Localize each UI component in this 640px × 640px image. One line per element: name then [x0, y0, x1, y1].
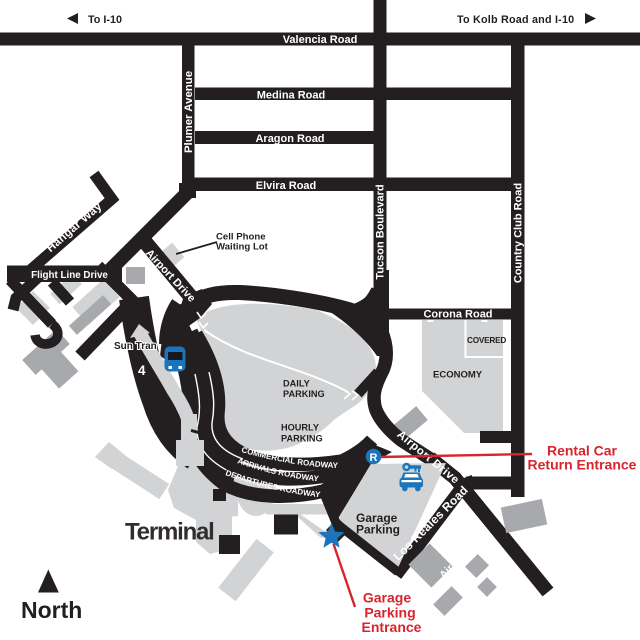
svg-text:Plumer Avenue: Plumer Avenue: [183, 71, 195, 153]
svg-text:ECONOMY: ECONOMY: [433, 370, 483, 381]
svg-text:Terminal: Terminal: [125, 519, 214, 546]
svg-text:Corona Road: Corona Road: [423, 309, 492, 321]
svg-text:Elvira Road: Elvira Road: [256, 180, 317, 192]
svg-text:PARKING: PARKING: [281, 434, 323, 444]
svg-text:PARKING: PARKING: [283, 389, 325, 399]
svg-text:Garage: Garage: [363, 590, 411, 606]
svg-text:Valencia Road: Valencia Road: [283, 34, 358, 46]
svg-text:To I-10: To I-10: [88, 14, 122, 26]
svg-text:Entrance: Entrance: [362, 619, 422, 635]
svg-text:To Kolb Road and I-10: To Kolb Road and I-10: [457, 14, 574, 26]
svg-text:HOURLY: HOURLY: [281, 423, 319, 433]
svg-text:Flight Line Drive: Flight Line Drive: [31, 270, 108, 281]
svg-text:4: 4: [138, 363, 146, 378]
svg-text:DAILY: DAILY: [283, 379, 310, 389]
svg-text:North: North: [21, 597, 82, 623]
svg-text:Medina Road: Medina Road: [257, 90, 325, 102]
svg-text:Sun Tran: Sun Tran: [114, 341, 157, 352]
svg-text:R: R: [370, 452, 378, 464]
svg-text:Aragon Road: Aragon Road: [255, 133, 324, 145]
svg-text:Waiting Lot: Waiting Lot: [216, 242, 269, 253]
svg-text:Country Club Road: Country Club Road: [513, 183, 525, 283]
svg-text:Parking: Parking: [356, 523, 400, 537]
svg-text:Tucson Boulevard: Tucson Boulevard: [375, 184, 387, 279]
svg-text:COVERED: COVERED: [467, 336, 506, 345]
svg-text:Return Entrance: Return Entrance: [528, 457, 637, 473]
